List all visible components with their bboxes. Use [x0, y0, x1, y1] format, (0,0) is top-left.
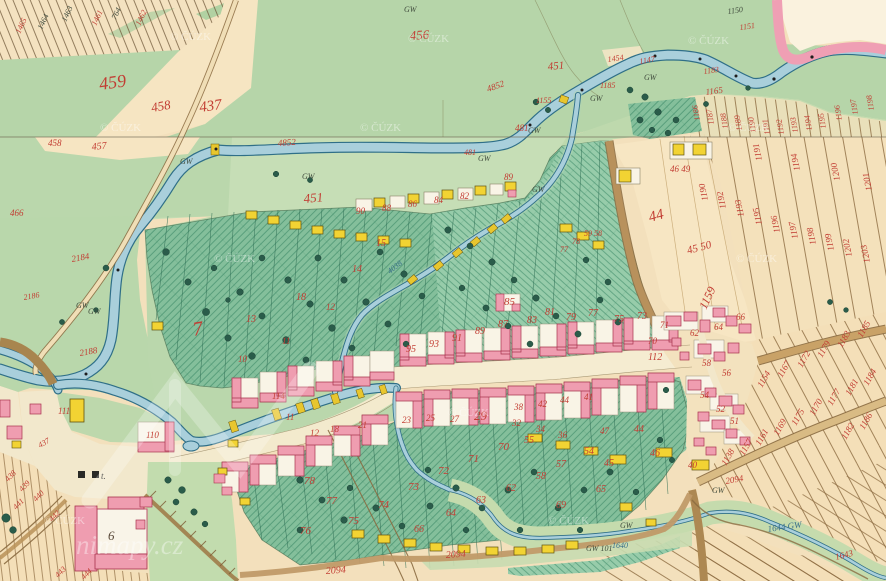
svg-text:© ČÚZK: © ČÚZK	[688, 35, 729, 47]
svg-text:75: 75	[614, 314, 624, 325]
svg-text:55: 55	[524, 435, 534, 446]
svg-text:481: 481	[515, 123, 529, 133]
svg-text:64: 64	[714, 322, 724, 332]
svg-text:GW: GW	[532, 185, 546, 194]
svg-text:GW: GW	[76, 301, 90, 310]
svg-text:89: 89	[504, 172, 514, 182]
svg-text:70: 70	[648, 336, 658, 346]
svg-text:451: 451	[303, 189, 324, 206]
svg-text:70: 70	[498, 441, 510, 453]
svg-text:58: 58	[536, 471, 546, 482]
svg-text:2094: 2094	[445, 549, 466, 561]
svg-text:52: 52	[716, 404, 726, 414]
svg-text:466: 466	[10, 208, 24, 218]
svg-text:GW: GW	[590, 94, 604, 103]
svg-text:66: 66	[736, 312, 746, 322]
svg-text:44: 44	[634, 424, 644, 435]
svg-text:76: 76	[300, 525, 312, 537]
svg-text:58: 58	[702, 358, 712, 368]
svg-text:41: 41	[584, 392, 593, 402]
svg-text:GW: GW	[528, 126, 542, 135]
svg-text:73: 73	[637, 311, 647, 322]
svg-text:437: 437	[198, 97, 224, 116]
svg-text:32: 32	[511, 418, 522, 428]
svg-text:4852: 4852	[277, 137, 296, 148]
svg-text:74: 74	[378, 499, 390, 511]
svg-text:1155: 1155	[536, 96, 551, 105]
svg-text:73: 73	[408, 481, 420, 493]
svg-text:GW: GW	[478, 154, 492, 163]
svg-text:54: 54	[700, 390, 710, 400]
svg-text:75: 75	[348, 515, 360, 527]
svg-text:77: 77	[326, 495, 338, 507]
svg-text:40: 40	[688, 460, 698, 470]
svg-text:51: 51	[730, 416, 739, 426]
svg-text:459: 459	[98, 70, 128, 94]
svg-text:84: 84	[434, 195, 444, 205]
svg-text:GW 101: GW 101	[586, 544, 612, 553]
svg-text:85: 85	[504, 296, 516, 308]
svg-text:71: 71	[468, 453, 479, 465]
svg-text:© ČÚZK: © ČÚZK	[100, 122, 141, 134]
svg-text:1185: 1185	[600, 81, 615, 90]
svg-text:63: 63	[476, 495, 486, 506]
svg-text:65: 65	[596, 484, 606, 495]
svg-text:78: 78	[572, 237, 580, 246]
svg-text:451: 451	[547, 60, 564, 73]
svg-text:56: 56	[722, 368, 732, 378]
svg-text:GW: GW	[302, 172, 316, 181]
svg-text:© ČÚZK: © ČÚZK	[736, 253, 777, 265]
svg-text:GW: GW	[712, 486, 726, 495]
svg-text:11: 11	[282, 336, 290, 346]
svg-text:© ČÚZK: © ČÚZK	[214, 253, 255, 265]
svg-text:83: 83	[527, 315, 537, 326]
svg-text:42: 42	[538, 399, 548, 409]
svg-text:81: 81	[545, 307, 555, 318]
svg-text:72: 72	[438, 465, 450, 477]
svg-text:91: 91	[452, 333, 462, 344]
svg-text:13: 13	[246, 314, 256, 325]
svg-text:23: 23	[402, 415, 412, 425]
svg-text:© ČÚZK: © ČÚZK	[408, 33, 449, 45]
svg-text:66: 66	[414, 524, 424, 535]
svg-text:78: 78	[304, 475, 316, 487]
svg-text:18: 18	[330, 424, 340, 434]
svg-text:© ČÚZK: © ČÚZK	[170, 31, 211, 43]
svg-text:111: 111	[58, 406, 70, 416]
svg-text:457: 457	[91, 140, 108, 153]
svg-text:57: 57	[556, 459, 567, 470]
svg-text:GW: GW	[404, 5, 418, 14]
svg-text:69: 69	[556, 500, 566, 511]
svg-text:nimapy.cz: nimapy.cz	[76, 530, 184, 560]
svg-text:47: 47	[600, 426, 610, 436]
svg-text:64: 64	[446, 508, 456, 519]
svg-text:36: 36	[557, 430, 568, 440]
svg-text:2094: 2094	[325, 565, 346, 577]
svg-text:79: 79	[566, 312, 576, 323]
svg-text:89: 89	[475, 326, 485, 337]
svg-text:15: 15	[376, 238, 386, 249]
svg-text:54: 54	[584, 446, 594, 457]
svg-text:12: 12	[326, 302, 336, 312]
svg-text:62: 62	[690, 328, 700, 338]
svg-text:44: 44	[560, 395, 570, 405]
svg-text:90: 90	[356, 206, 366, 216]
svg-text:18: 18	[296, 292, 306, 303]
svg-text:1640: 1640	[612, 541, 628, 550]
svg-text:46 49: 46 49	[670, 164, 691, 174]
svg-text:112: 112	[648, 352, 662, 363]
svg-text:© ČÚZK: © ČÚZK	[448, 407, 489, 419]
svg-text:481: 481	[464, 148, 476, 157]
svg-text:77: 77	[588, 308, 599, 319]
svg-text:21: 21	[358, 420, 367, 430]
svg-text:88: 88	[382, 203, 392, 213]
svg-text:45: 45	[604, 458, 614, 469]
svg-text:38: 38	[513, 402, 524, 412]
svg-text:86: 86	[408, 199, 418, 209]
svg-text:© ČÚZK: © ČÚZK	[548, 515, 589, 527]
svg-text:71: 71	[660, 320, 669, 330]
svg-text:12: 12	[310, 428, 320, 438]
svg-text:95: 95	[406, 344, 416, 355]
svg-text:GW: GW	[180, 157, 194, 166]
svg-text:62: 62	[506, 483, 516, 494]
svg-text:GW: GW	[88, 307, 102, 316]
svg-text:© ČÚZK: © ČÚZK	[360, 122, 401, 134]
svg-text:93: 93	[429, 339, 439, 350]
svg-text:GW: GW	[620, 521, 634, 530]
svg-text:14: 14	[352, 264, 362, 275]
svg-text:34: 34	[535, 424, 546, 434]
svg-text:82: 82	[460, 191, 470, 201]
svg-text:458: 458	[48, 138, 62, 148]
svg-text:59 58: 59 58	[584, 229, 602, 238]
svg-text:10: 10	[238, 354, 248, 364]
svg-text:77: 77	[560, 245, 569, 254]
svg-text:© ČÚZK: © ČÚZK	[728, 122, 769, 134]
svg-text:GW: GW	[644, 73, 658, 82]
svg-text:46: 46	[650, 448, 660, 459]
svg-text:© ČÚZK: © ČÚZK	[44, 515, 85, 527]
svg-text:25: 25	[426, 413, 436, 423]
svg-text:87: 87	[498, 319, 509, 330]
